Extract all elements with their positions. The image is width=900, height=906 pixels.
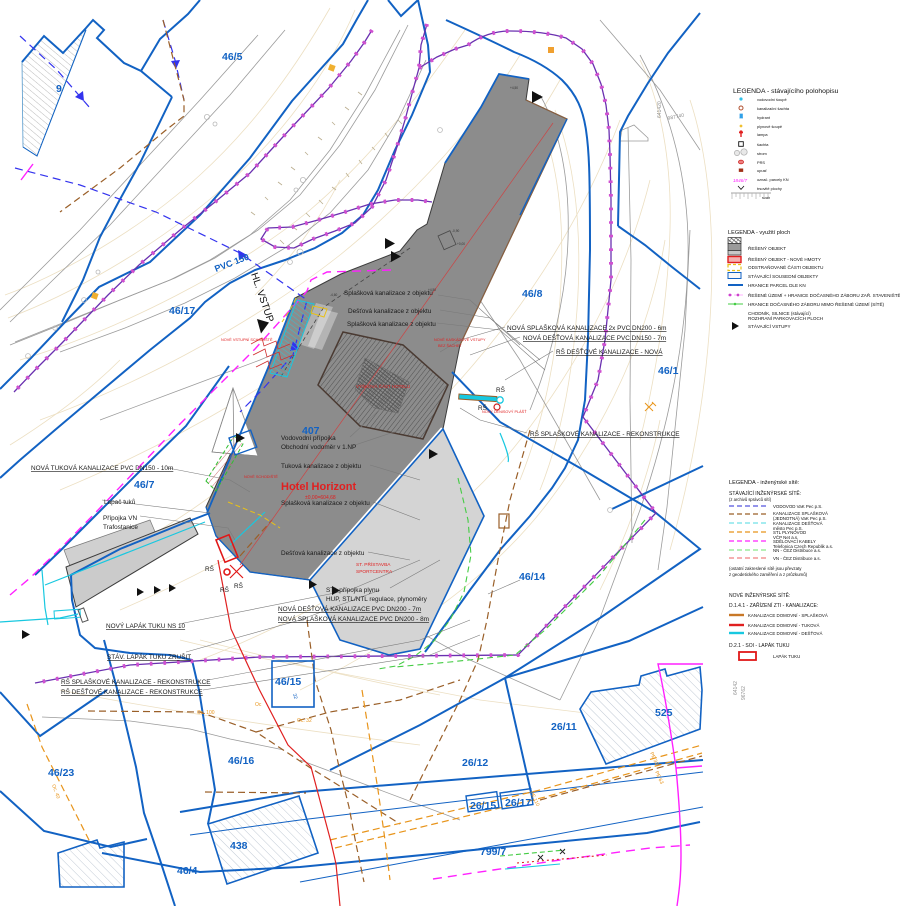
svg-text:RŠ SPLAŠKOVÉ KANALIZACE - REKO: RŠ SPLAŠKOVÉ KANALIZACE - REKONSTRUKCE <box>61 677 211 686</box>
svg-text:NOVÝ LAPÁK TUKU NS 10: NOVÝ LAPÁK TUKU NS 10 <box>106 621 186 630</box>
svg-text:STÁV. LAPÁK TUKU ZRUŠIT: STÁV. LAPÁK TUKU ZRUŠIT <box>107 652 191 661</box>
svg-text:46/1: 46/1 <box>658 365 679 377</box>
svg-text:46/23: 46/23 <box>48 767 74 779</box>
svg-text:LEGENDA - využití ploch: LEGENDA - využití ploch <box>728 230 790 236</box>
svg-text:ROZHRANÍ PARKOVACÍCH PLOCH: ROZHRANÍ PARKOVACÍCH PLOCH <box>748 315 823 321</box>
svg-text:ŘEŠENÝ OBJEKT - NOVÉ HMOTY: ŘEŠENÝ OBJEKT - NOVÉ HMOTY <box>748 255 821 262</box>
svg-text:Trafostanice: Trafostanice <box>103 524 138 531</box>
svg-text:strom: strom <box>757 151 767 156</box>
svg-text:VÝŠKOVÁ ČÁST HOTELU: VÝŠKOVÁ ČÁST HOTELU <box>356 383 410 389</box>
svg-text:svah: svah <box>762 195 770 200</box>
svg-text:označ. parcely KN: označ. parcely KN <box>757 177 789 182</box>
svg-text:438: 438 <box>230 840 248 852</box>
svg-text:ODSTRAŇOVANÉ ČÁSTI OBJEKTU: ODSTRAŇOVANÉ ČÁSTI OBJEKTU <box>748 264 823 270</box>
svg-text:ŘEŠENÉ ÚZEMÍ + HRANICE DOČASNÉ: ŘEŠENÉ ÚZEMÍ + HRANICE DOČASNÉHO ZÁBORU … <box>748 291 900 298</box>
svg-text:RŠ DEŠŤOVÉ KANALIZACE - REKONS: RŠ DEŠŤOVÉ KANALIZACE - REKONSTRUKCE <box>61 687 203 696</box>
svg-text:NOVÝ DENISOVÝ PLÁŠŤ: NOVÝ DENISOVÝ PLÁŠŤ <box>482 409 527 414</box>
svg-text:STÁVAJÍCÍ INŽENÝRSKÉ SÍTĚ:: STÁVAJÍCÍ INŽENÝRSKÉ SÍTĚ: <box>729 489 801 497</box>
svg-text:STL přípojka plynu: STL přípojka plynu <box>326 587 379 594</box>
svg-text:Hotel Horizont: Hotel Horizont <box>281 481 356 493</box>
svg-text:VN - ČEZ Distribuce a.s.: VN - ČEZ Distribuce a.s. <box>773 556 821 561</box>
svg-text:RŠ: RŠ <box>205 564 214 573</box>
svg-text:Oc. 32: Oc. 32 <box>297 718 312 724</box>
svg-text:D.1.4.1 - ZAŘÍZENÍ ZTI - KANAL: D.1.4.1 - ZAŘÍZENÍ ZTI - KANALIZACE: <box>729 601 818 609</box>
svg-text:RŠ: RŠ <box>496 385 505 394</box>
svg-text:64142: 64142 <box>733 681 739 695</box>
svg-text:PRS: PRS <box>757 160 765 165</box>
svg-text:(ostatní zakreslené sítě jsou: (ostatní zakreslené sítě jsou převzaty <box>729 566 802 571</box>
svg-text:HUP, STL/NTL regulace, plynomě: HUP, STL/NTL regulace, plynoměry <box>326 596 428 603</box>
svg-text:RŠ: RŠ <box>234 581 243 590</box>
svg-text:HRANICE DOČASNÉHO ZÁBORU MIMO: HRANICE DOČASNÉHO ZÁBORU MIMO ŘEŠENÉ ÚZE… <box>748 300 885 307</box>
svg-text:BEZ ŠACHET: BEZ ŠACHET <box>438 343 463 348</box>
svg-text:Splašková kanalizace z objektu: Splašková kanalizace z objektu <box>347 321 436 328</box>
svg-text:46/7: 46/7 <box>134 479 155 491</box>
svg-text:kanalizační šachta: kanalizační šachta <box>757 106 790 111</box>
svg-text:641420: 641420 <box>657 101 663 118</box>
svg-text:96762: 96762 <box>741 686 747 700</box>
svg-text:Splašková kanalizace z objektu: Splašková kanalizace z objektu <box>344 290 433 297</box>
svg-text:1846/7: 1846/7 <box>733 178 747 183</box>
svg-text:ŘEŠENÝ OBJEKT: ŘEŠENÝ OBJEKT <box>748 244 786 251</box>
svg-text:RŠ DEŠŤOVÉ KANALIZACE - NOVÁ: RŠ DEŠŤOVÉ KANALIZACE - NOVÁ <box>556 347 663 356</box>
svg-text:46/14: 46/14 <box>519 571 545 583</box>
svg-text:+4,50: +4,50 <box>428 288 436 292</box>
svg-text:NOVÉ INŽENÝRSKÉ SÍTĚ:: NOVÉ INŽENÝRSKÉ SÍTĚ: <box>729 591 790 599</box>
svg-text:trsovitě plochy: trsovitě plochy <box>757 186 782 191</box>
svg-text:Dešťová kanalizace z objektu: Dešťová kanalizace z objektu <box>281 550 365 557</box>
svg-text:KANALIZACE DOMOVNÍ - SPLAŠKOVÁ: KANALIZACE DOMOVNÍ - SPLAŠKOVÁ <box>748 613 828 618</box>
svg-text:HRANICE PARCEL DLE KN: HRANICE PARCEL DLE KN <box>748 283 806 288</box>
svg-text:šachta: šachta <box>757 142 769 147</box>
svg-text:NOVÁ SPLAŠKOVÁ KANALIZACE 2x P: NOVÁ SPLAŠKOVÁ KANALIZACE 2x PVC DN200 -… <box>507 323 666 332</box>
svg-text:9: 9 <box>56 83 62 95</box>
svg-text:Přípojka VN: Přípojka VN <box>103 515 137 522</box>
svg-text:+4,50: +4,50 <box>510 86 518 90</box>
svg-text:NOVÉ VSTUPNÍ SCHODIŠTĚ: NOVÉ VSTUPNÍ SCHODIŠTĚ <box>221 337 273 342</box>
svg-text:RŠ: RŠ <box>478 403 487 412</box>
svg-text:NOVÁ TUKOVÁ KANALIZACE PVC DN1: NOVÁ TUKOVÁ KANALIZACE PVC DN150 - 10m <box>31 463 173 472</box>
svg-text:Tuková kanalizace z objektu: Tuková kanalizace z objektu <box>281 463 361 470</box>
svg-text:26/11: 26/11 <box>551 721 577 733</box>
svg-text:LEGENDA - inženýrské sítě:: LEGENDA - inženýrské sítě: <box>729 480 800 486</box>
svg-text:46/4: 46/4 <box>177 865 198 877</box>
svg-text:NOVÁ DEŠŤOVÁ KANALIZACE PVC DN: NOVÁ DEŠŤOVÁ KANALIZACE PVC DN200 - 7m <box>278 604 421 613</box>
svg-text:NOVÉ KASKÁDOVÉ VSTUPY: NOVÉ KASKÁDOVÉ VSTUPY <box>434 337 486 342</box>
svg-text:(z archivů správců sítí): (z archivů správců sítí) <box>729 497 772 502</box>
svg-text:799/7: 799/7 <box>480 846 506 858</box>
svg-text:Lapač tuků: Lapač tuků <box>104 498 136 506</box>
svg-text:NOVÉ SCHODIŠTĚ: NOVÉ SCHODIŠTĚ <box>244 474 278 479</box>
svg-text:NOVÁ SPLAŠKOVÁ KANALIZACE PVC: NOVÁ SPLAŠKOVÁ KANALIZACE PVC DN200 - 8m <box>278 614 429 623</box>
svg-text:LAPÁK TUKU: LAPÁK TUKU <box>773 654 800 659</box>
svg-text:upusť: upusť <box>757 168 767 173</box>
svg-text:vodovodní šoupě: vodovodní šoupě <box>757 97 787 102</box>
svg-text:46/8: 46/8 <box>522 288 543 300</box>
svg-text:Oc. 100: Oc. 100 <box>197 710 215 716</box>
svg-text:RŠ SPLAŠKOVÉ KANALIZACE - REKO: RŠ SPLAŠKOVÉ KANALIZACE - REKONSTRUKCE <box>530 429 680 438</box>
svg-text:RŠ: RŠ <box>220 585 229 594</box>
svg-text:Oc: Oc <box>255 702 262 708</box>
svg-text:Obchodní vodoměr v 1.NP: Obchodní vodoměr v 1.NP <box>281 444 356 451</box>
svg-text:lampa: lampa <box>757 132 768 137</box>
svg-text:z geodetického zaměření a z pr: z geodetického zaměření a z průzkumů) <box>729 572 808 577</box>
svg-text:Dešťová kanalizace z objektu: Dešťová kanalizace z objektu <box>348 308 432 315</box>
svg-text:KANALIZACE DOMOVNÍ - DEŠŤOVÁ: KANALIZACE DOMOVNÍ - DEŠŤOVÁ <box>748 631 822 636</box>
svg-text:46/5: 46/5 <box>222 51 243 63</box>
svg-text:KANALIZACE DOMOVNÍ - TUKOVÁ: KANALIZACE DOMOVNÍ - TUKOVÁ <box>748 623 819 628</box>
svg-text:SPORTCENTRA: SPORTCENTRA <box>356 569 393 575</box>
svg-text:525: 525 <box>655 707 673 719</box>
svg-text:LEGENDA - stávajícího polohopi: LEGENDA - stávajícího polohopisu <box>733 88 839 95</box>
svg-text:46/17: 46/17 <box>169 305 195 317</box>
svg-text:plynově šoupě: plynově šoupě <box>757 124 782 129</box>
svg-text:46/16: 46/16 <box>228 755 254 767</box>
svg-text:-0,90: -0,90 <box>452 229 459 233</box>
svg-text:+0,00: +0,00 <box>457 242 465 246</box>
svg-text:VODOVOD VaK Pec p.S.: VODOVOD VaK Pec p.S. <box>773 504 822 509</box>
svg-text:STÁVAJÍCÍ VSTUPY: STÁVAJÍCÍ VSTUPY <box>748 323 791 329</box>
svg-text:STÁVAJÍCÍ SOUSEDNÍ OBJEKTY: STÁVAJÍCÍ SOUSEDNÍ OBJEKTY <box>748 273 818 279</box>
svg-text:D.2.1 - SOI - LAPÁK TUKU: D.2.1 - SOI - LAPÁK TUKU <box>729 642 790 649</box>
svg-text:NN - ČEZ Distribuce a.s.: NN - ČEZ Distribuce a.s. <box>773 548 821 553</box>
svg-text:26/12: 26/12 <box>462 757 488 769</box>
svg-text:hydrant: hydrant <box>757 115 771 120</box>
svg-text:-4,60: -4,60 <box>330 293 337 297</box>
svg-text:Vodovodní přípojka: Vodovodní přípojka <box>281 435 336 442</box>
svg-text:NOVÁ DEŠŤOVÁ KANALIZACE PVC DN: NOVÁ DEŠŤOVÁ KANALIZACE PVC DN150 - 7m <box>523 333 666 342</box>
svg-text:Splašková kanalizace z objektu: Splašková kanalizace z objektu <box>281 500 370 507</box>
svg-text:46/15: 46/15 <box>275 676 301 688</box>
